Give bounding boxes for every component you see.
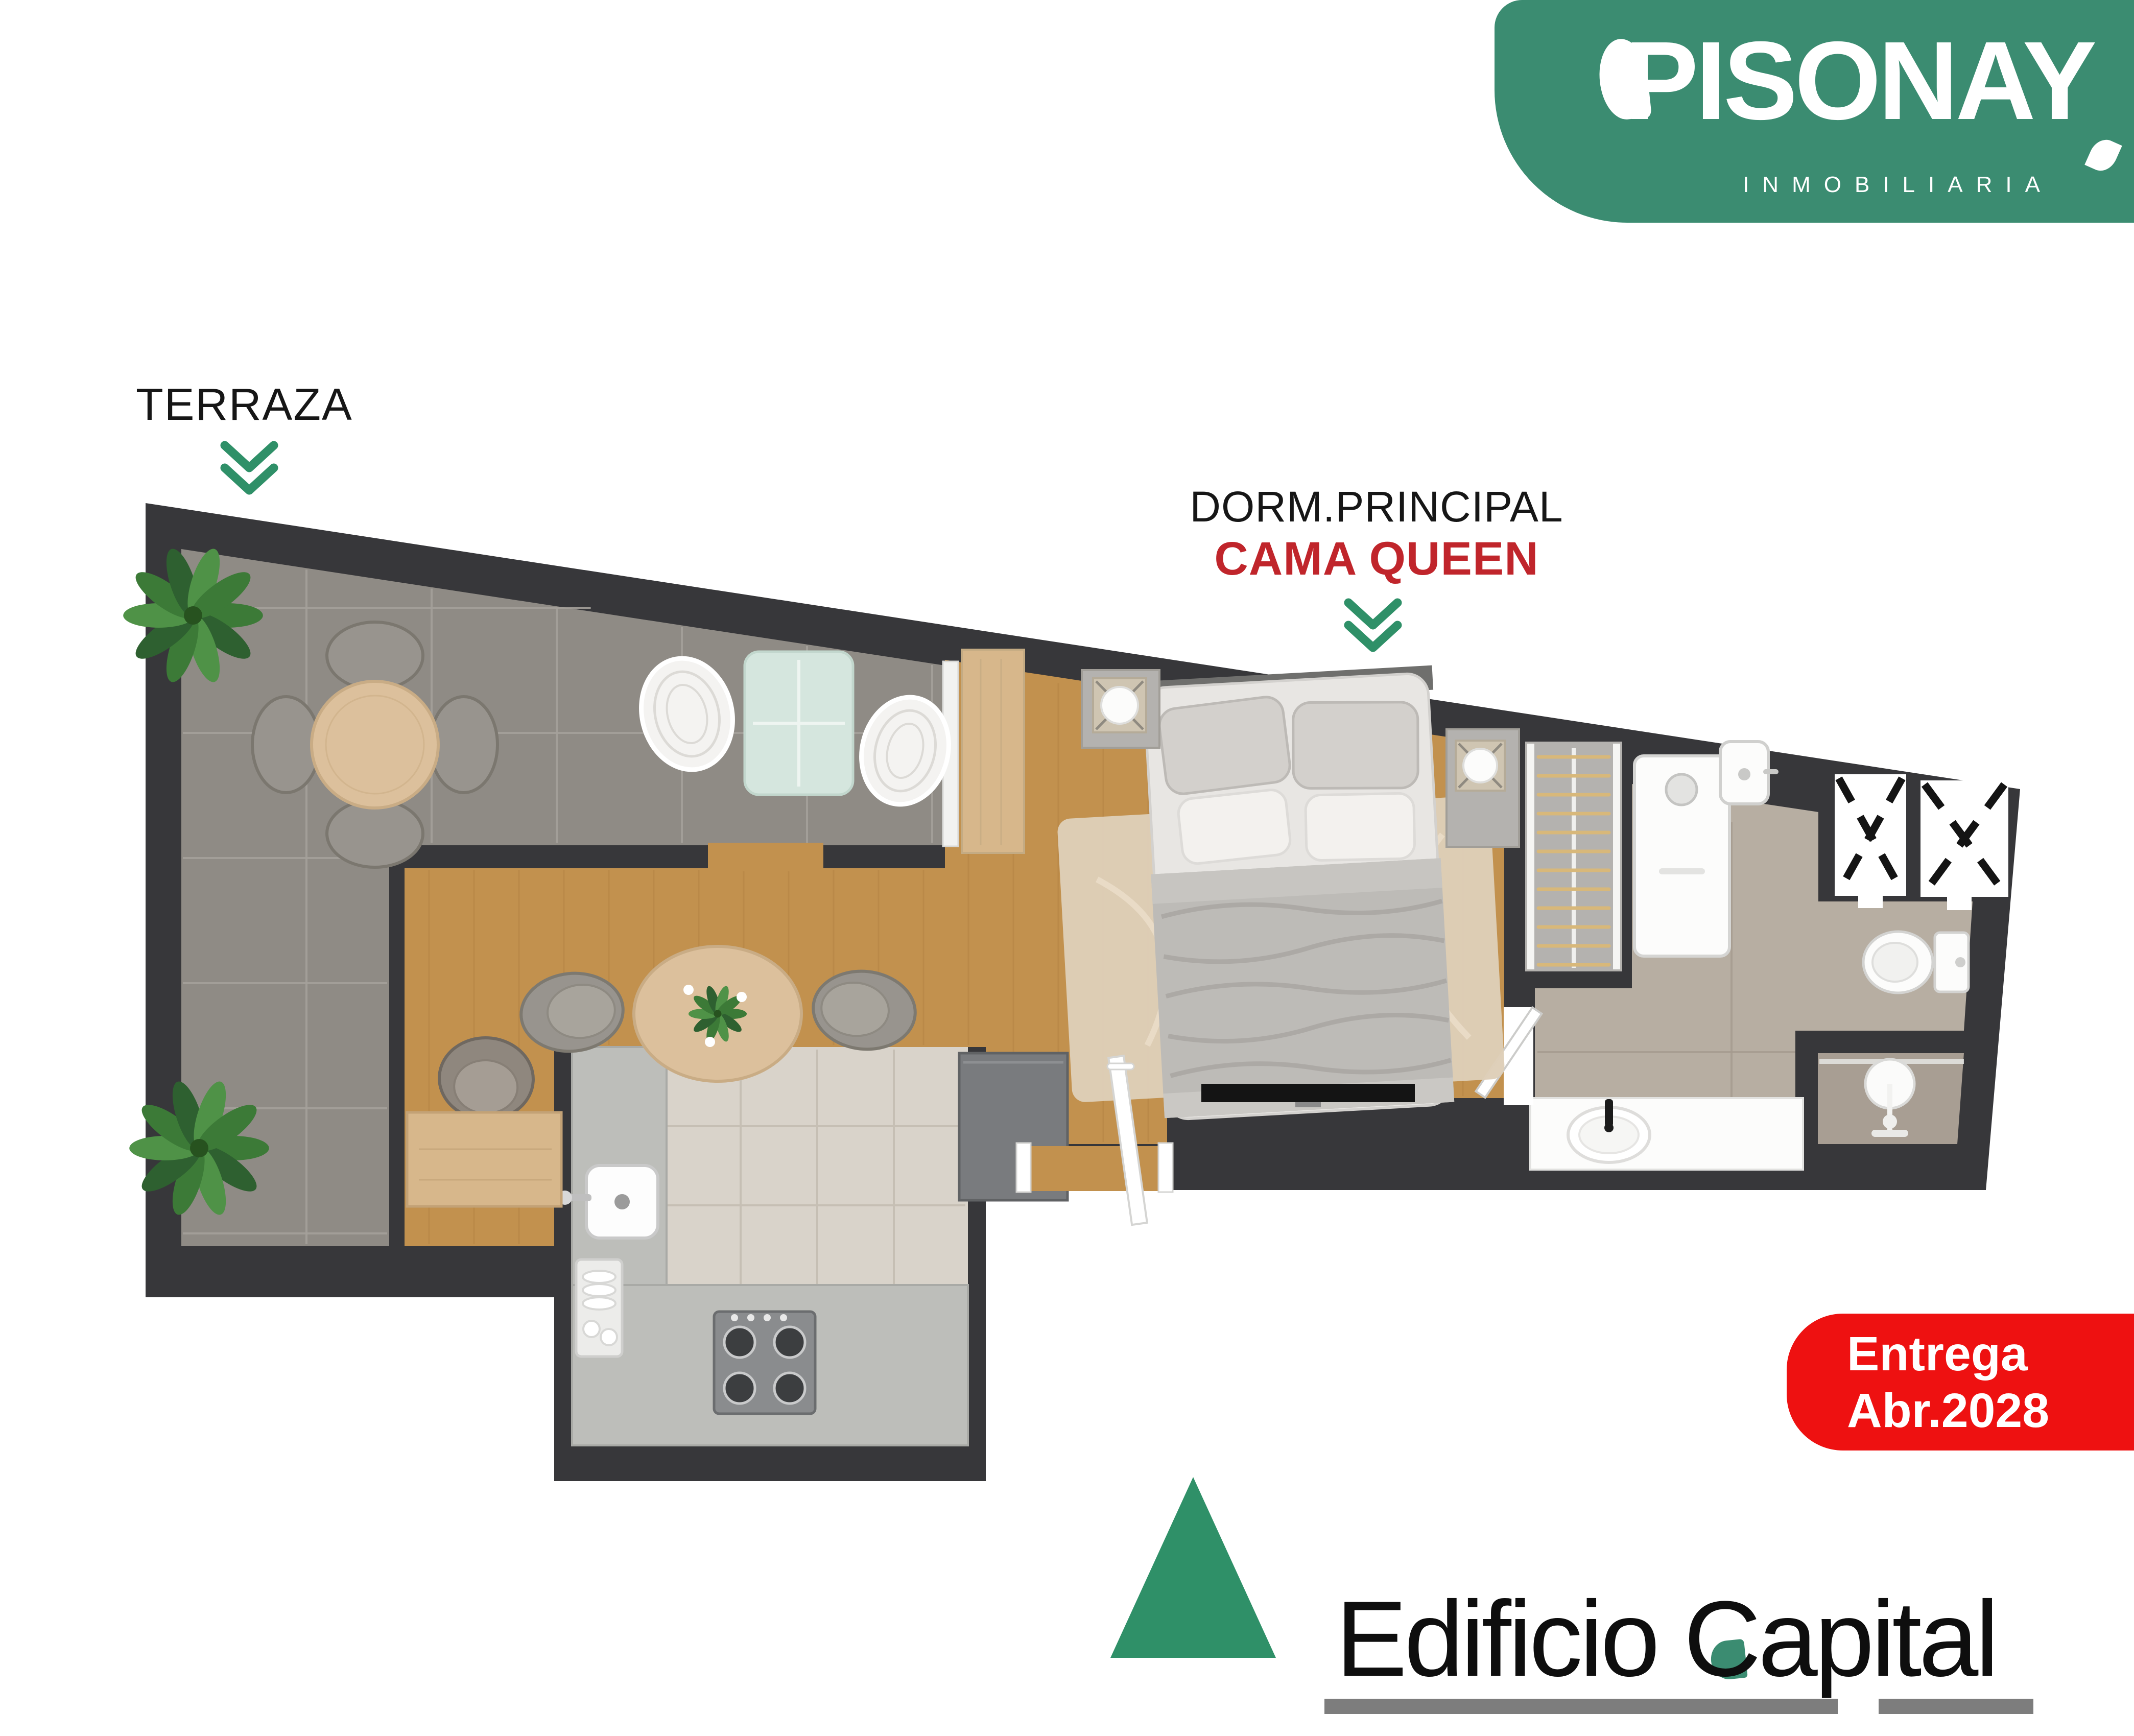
wardrobe <box>943 650 1024 853</box>
closet <box>1525 742 1622 971</box>
toilet <box>1863 932 1969 993</box>
building-name-word1: Edificio <box>1336 1579 1657 1699</box>
desk <box>407 1112 561 1206</box>
brand-name: PISONAY <box>1624 26 2094 137</box>
plant-center <box>190 1139 208 1157</box>
brand-logo: PISONAY INMOBILIARIA <box>1495 0 2134 223</box>
plant-center <box>714 1010 722 1018</box>
gas-stove <box>714 1312 815 1414</box>
outdoor-chair <box>252 697 320 793</box>
mint-side-table <box>745 652 853 795</box>
brand-tagline: INMOBILIARIA <box>1678 174 2118 196</box>
pillow <box>1157 695 1292 796</box>
entrance-triangle-icon <box>1110 1477 1276 1658</box>
plant-center <box>184 606 202 625</box>
outdoor-chair <box>327 622 423 689</box>
terrace-label: TERRAZA <box>136 382 353 427</box>
building-name: Edificio Capital <box>1336 1585 1996 1693</box>
laundry-unit <box>1634 756 1729 956</box>
outdoor-chair <box>327 800 423 867</box>
chevron-down-icon <box>1342 597 1404 658</box>
master-bedroom-label-line1: DORM.PRINCIPAL <box>1159 485 1594 528</box>
dish-rack <box>576 1259 622 1357</box>
delivery-badge-line1: Entrega <box>1847 1326 2134 1383</box>
divider-opening <box>708 843 823 871</box>
nightstand <box>1447 729 1519 847</box>
building-underline <box>1324 1699 1838 1714</box>
vanity-counter <box>1530 1098 1803 1170</box>
outdoor-chair <box>430 697 497 793</box>
master-bedroom-label-line2: CAMA QUEEN <box>1159 535 1594 582</box>
elevator-shafts <box>1835 774 2008 910</box>
delivery-badge-line2: Abr.2028 <box>1847 1383 2134 1439</box>
chevron-down-icon <box>219 439 280 501</box>
building-name-word2: Capital <box>1684 1579 1996 1699</box>
shower-wall-h <box>1795 1031 1982 1053</box>
building-underline <box>1879 1699 2033 1714</box>
pillow <box>1306 793 1415 861</box>
kitchen <box>558 1047 968 1445</box>
delivery-badge: Entrega Abr.2028 <box>1787 1314 2134 1450</box>
tv <box>1201 1084 1415 1102</box>
master-bedroom-label: DORM.PRINCIPAL CAMA QUEEN <box>1159 485 1594 582</box>
floor-plan <box>0 0 2134 1736</box>
bath-sink <box>1720 742 1779 804</box>
kitchen-floor <box>664 1047 968 1287</box>
pillow <box>1177 789 1292 865</box>
listing-poster: { "canvas": {"width": 4178, "height": 33… <box>0 0 2134 1736</box>
nightstand <box>1082 670 1159 748</box>
pillow <box>1293 702 1418 789</box>
